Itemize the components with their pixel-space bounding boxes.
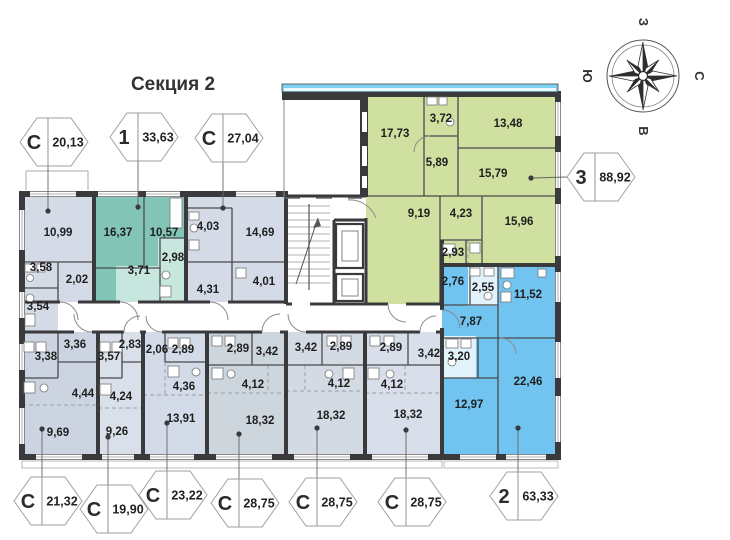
room-area-label: 15,96 [505, 216, 534, 228]
room-area-label: 3,38 [35, 351, 58, 363]
room-area-label: 18,32 [246, 415, 275, 427]
badge-type: С [202, 128, 216, 150]
apartment-badge[interactable]: 2 63,33 [490, 472, 558, 520]
room-area-label: 13,48 [494, 118, 523, 130]
room-area-label: 3,57 [98, 351, 120, 363]
room-area-label: 4,24 [110, 391, 133, 403]
room-area-label: 2,55 [472, 282, 495, 294]
staircase [288, 204, 330, 290]
room-area-label: 10,99 [44, 227, 73, 239]
badge-type: С [21, 491, 35, 513]
room-area-label: 18,32 [317, 410, 346, 422]
room-area-label: 14,69 [246, 227, 275, 239]
room-area-label: 17,73 [381, 128, 410, 140]
room-area-label: 3,54 [27, 301, 50, 313]
room-area-label: 2,83 [119, 339, 141, 351]
compass-star [609, 42, 677, 110]
apartment-badge[interactable]: С 21,32 [14, 477, 82, 525]
apartment-badge[interactable]: С 28,75 [378, 478, 446, 526]
open-balcony-edges [284, 100, 367, 198]
room-area-label: 16,37 [104, 227, 133, 239]
room-area-label: 9,19 [408, 208, 430, 220]
room-area-label: 4,36 [173, 381, 195, 393]
room-area-label: 10,57 [150, 227, 179, 239]
section-title: Секция 2 [131, 74, 215, 95]
badge-area: 28,75 [410, 496, 441, 510]
room-area-label: 2,06 [146, 344, 168, 356]
apartment-badge[interactable]: С 19,90 [80, 485, 148, 533]
balcony-outline [26, 171, 88, 190]
badge-type: С [218, 493, 232, 515]
floor-plan-page: 10,99 3,58 2,02 3,54 16,37 10,57 3,71 2,… [0, 0, 730, 540]
badge-area: 23,22 [171, 489, 202, 503]
apartment-badge[interactable]: С 28,75 [289, 478, 357, 526]
room-area-label: 12,97 [455, 399, 484, 411]
compass-south-label: Ю [580, 69, 595, 82]
compass-west-label: З [636, 18, 651, 26]
room-area-label: 3,72 [430, 113, 452, 125]
compass-north-label: С [692, 71, 707, 81]
compass-rose: З С Ю В [580, 18, 707, 136]
room-area-label: 4,12 [328, 378, 350, 390]
room-area-label: 3,20 [448, 351, 470, 363]
apartment-badge[interactable]: С 28,75 [211, 479, 279, 527]
room-area-label: 18,32 [394, 409, 423, 421]
room-area-label: 4,12 [381, 379, 403, 391]
room-area-label: 2,89 [330, 341, 352, 353]
apartment-badge[interactable]: С 27,04 [195, 114, 263, 162]
room-area-label: 7,87 [460, 316, 482, 328]
elevator-shafts [336, 224, 363, 301]
badge-area: 28,75 [321, 496, 352, 510]
room-area-label: 4,01 [253, 276, 276, 288]
room-area-label: 2,89 [227, 343, 249, 355]
badge-area: 88,92 [599, 171, 630, 185]
badge-type: С [27, 132, 41, 154]
room-area-label: 5,89 [426, 157, 448, 169]
room-area-label: 3,42 [256, 346, 278, 358]
badge-area: 28,75 [243, 497, 274, 511]
room-area-label: 22,46 [514, 376, 543, 388]
badge-type: С [87, 499, 101, 521]
badge-type: С [296, 492, 310, 514]
room-area-label: 13,91 [167, 413, 196, 425]
room-area-label: 2,76 [442, 276, 464, 288]
apartment-badge[interactable]: 1 33,63 [110, 113, 178, 161]
apartment-badge[interactable]: С 23,22 [139, 471, 207, 519]
badge-area: 19,90 [112, 503, 143, 517]
badge-area: 33,63 [142, 131, 173, 145]
badge-type: 3 [575, 167, 586, 189]
room-area-label: 4,23 [450, 208, 472, 220]
room-area-label: 2,89 [172, 344, 194, 356]
room-area-label: 11,52 [514, 289, 542, 301]
room-area-label: 4,03 [197, 221, 219, 233]
badge-type: 1 [118, 127, 129, 149]
room-area-label: 9,69 [47, 427, 69, 439]
apartment-badge[interactable]: 3 88,92 [567, 153, 635, 201]
room-area-label: 2,89 [380, 342, 402, 354]
apartment-badge[interactable]: С 20,13 [20, 118, 88, 166]
room-area-label: 4,31 [197, 284, 220, 296]
badge-type: 2 [498, 486, 509, 508]
compass-east-label: В [636, 126, 651, 135]
room-area-label: 2,98 [162, 252, 185, 264]
room-area-label: 4,12 [242, 379, 264, 391]
balcony-glazing-strip [282, 84, 558, 92]
badge-type: С [385, 492, 399, 514]
room-area-label: 3,42 [295, 342, 317, 354]
room-area-label: 2,02 [66, 274, 88, 286]
badge-area: 21,32 [46, 495, 77, 509]
room-area-label: 3,42 [418, 348, 440, 360]
room-area-label: 4,44 [72, 388, 95, 400]
badge-area: 27,04 [227, 132, 258, 146]
badge-area: 63,33 [522, 490, 553, 504]
room-area-label: 3,36 [64, 339, 86, 351]
room-area-label: 3,71 [128, 265, 151, 277]
floor-plan-drawing: 10,99 3,58 2,02 3,54 16,37 10,57 3,71 2,… [0, 0, 730, 540]
room-area-label: 2,93 [442, 247, 464, 259]
badge-area: 20,13 [52, 136, 83, 150]
badge-type: С [146, 485, 160, 507]
room-area-label: 15,79 [479, 168, 508, 180]
room-area-label: 3,58 [30, 262, 53, 274]
